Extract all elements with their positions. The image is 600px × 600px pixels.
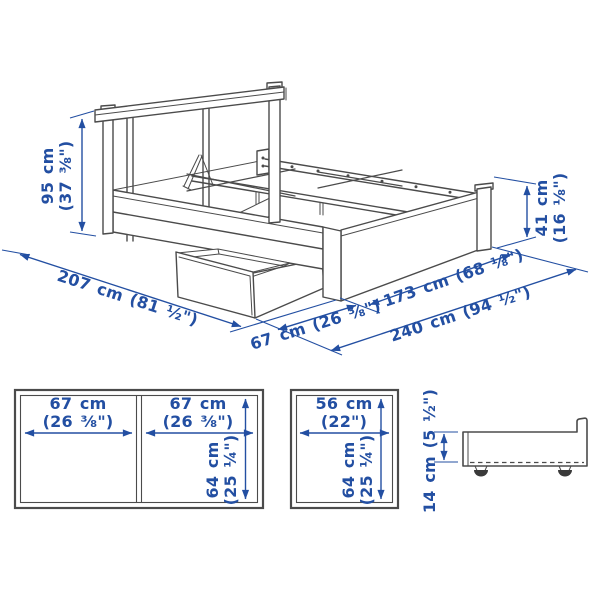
caster-right xyxy=(558,466,572,477)
dimension-footboard-height: 41 cm (16 ⅛") xyxy=(527,173,569,244)
double-box-top-view: 67 cm (26 ⅜") 67 cm (26 ⅜") 64 cm (25 ¼"… xyxy=(15,390,263,508)
double-box-depth-value: 64 cm xyxy=(203,442,222,499)
double-box-left-width-value: 67 cm xyxy=(50,394,107,413)
box-side-view: 14 cm (5 ½") xyxy=(420,389,587,513)
dimension-drawer-pullout: 67 cm (26 ⅜") xyxy=(248,296,383,354)
footboard-height-value: 41 cm xyxy=(532,180,551,237)
double-box-right-width-inches: (26 ⅜") xyxy=(163,412,234,431)
double-box-left-width-inches: (26 ⅜") xyxy=(43,412,114,431)
footboard-height-inches: (16 ⅛") xyxy=(550,173,569,244)
single-box-depth-inches: (25 ¼") xyxy=(357,435,376,506)
headboard-right-post xyxy=(269,86,280,223)
double-box-depth-inches: (25 ¼") xyxy=(221,435,240,506)
drawer-pullout-label: 67 cm (26 ⅜") xyxy=(248,296,383,354)
storage-box-open xyxy=(176,249,290,318)
dimension-diagram-page: 95 cm (37 ⅜") 41 cm (16 ⅛") 207 cm (81 ½… xyxy=(0,0,600,600)
box-side-profile xyxy=(463,418,587,466)
single-box-width-value: 56 cm xyxy=(316,394,373,413)
headboard-height-value: 95 cm xyxy=(38,148,57,205)
dimension-headboard-height: 95 cm (37 ⅜") xyxy=(38,119,82,231)
box-height-label: 14 cm (5 ½") xyxy=(420,389,439,513)
single-box-top-view: 56 cm (22") 64 cm (25 ¼") xyxy=(291,390,398,508)
caster-left xyxy=(474,466,488,477)
diagram-canvas: 95 cm (37 ⅜") 41 cm (16 ⅛") 207 cm (81 ½… xyxy=(0,0,600,600)
footboard-corner-post xyxy=(323,227,341,301)
headboard-height-inches: (37 ⅜") xyxy=(56,141,75,212)
double-box-right-width-value: 67 cm xyxy=(170,394,227,413)
headboard-top-rail xyxy=(95,87,284,122)
single-box-width-inches: (22") xyxy=(321,412,367,431)
footboard-end-post xyxy=(477,187,491,251)
headboard-left-post xyxy=(103,109,113,234)
single-box-depth-value: 64 cm xyxy=(339,442,358,499)
